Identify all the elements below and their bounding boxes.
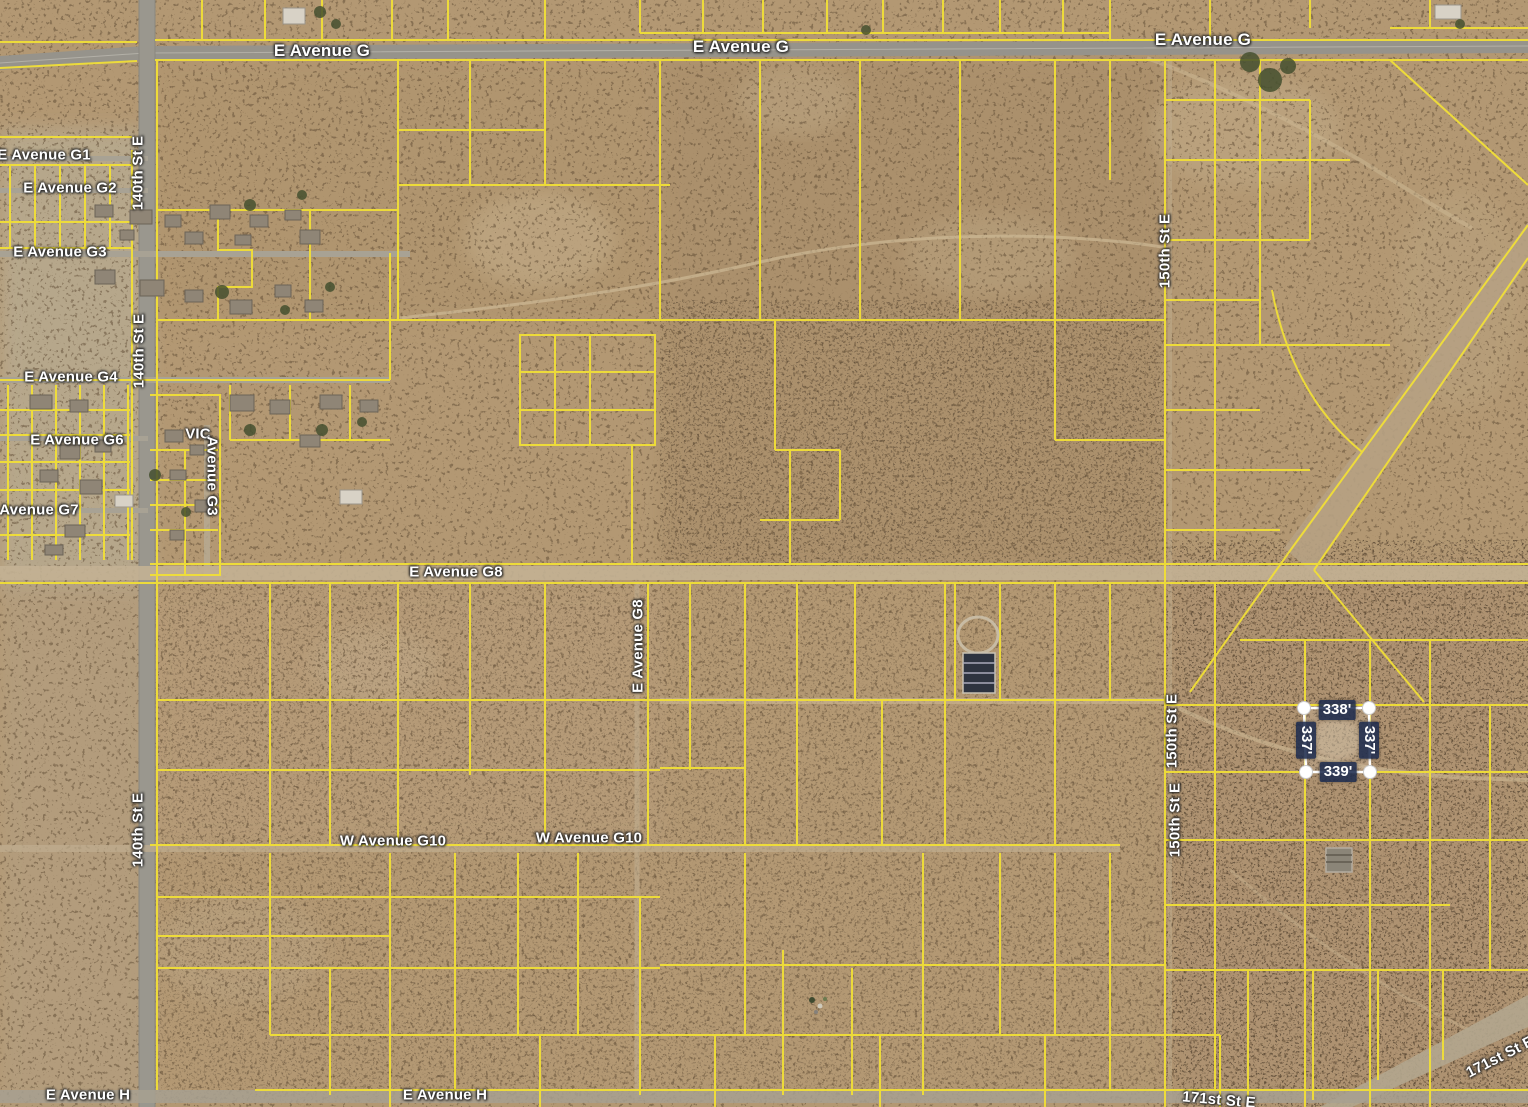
road-w-avenue-g10 <box>0 845 1120 852</box>
measure-handle-top-left[interactable] <box>1298 702 1311 715</box>
measure-handle-top-right[interactable] <box>1363 702 1376 715</box>
measure-handle-bottom-right[interactable] <box>1364 766 1377 779</box>
road-e-avenue-g8 <box>0 566 1528 580</box>
map-graphics <box>0 0 1528 1107</box>
satellite-map-canvas[interactable]: E Avenue G E Avenue G E Avenue G E Avenu… <box>0 0 1528 1107</box>
road-140th-st <box>139 0 155 1107</box>
measure-handle-bottom-left[interactable] <box>1300 766 1313 779</box>
greenhouse-structure <box>963 653 995 693</box>
selected-parcel[interactable] <box>1304 708 1370 772</box>
shed-structure <box>1326 848 1352 872</box>
parcel-measurement-overlay <box>1298 702 1377 779</box>
road-e-avenue-h <box>0 1090 1528 1103</box>
